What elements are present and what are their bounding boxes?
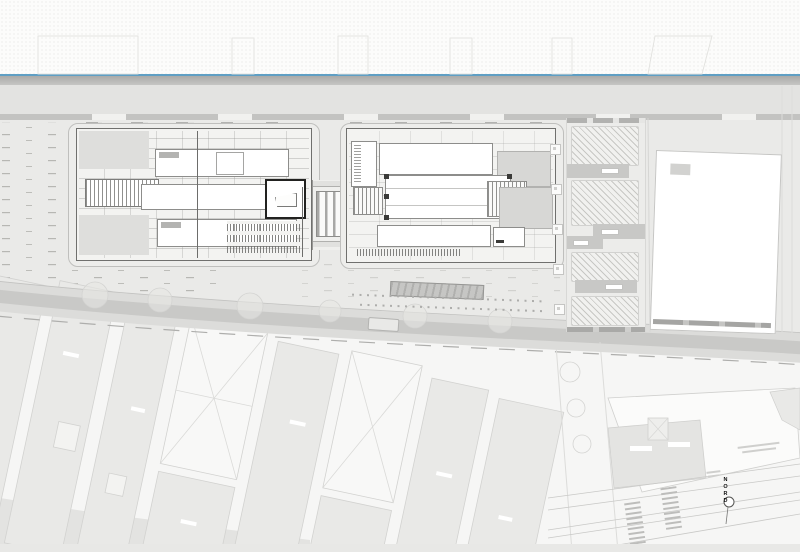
west-warehouse	[76, 128, 312, 261]
east-gray-suite-south	[499, 187, 553, 229]
lane-planter-2	[551, 184, 562, 195]
east-warehouse	[346, 128, 556, 263]
garden-bed-3	[571, 252, 639, 282]
east-col-chip-3	[507, 174, 512, 179]
west-hall-north-chip	[159, 152, 179, 158]
west-hall-south-chip	[161, 222, 181, 228]
east-plinth-grilles	[357, 248, 461, 256]
garden-path-1	[567, 164, 629, 178]
garden-path-3	[567, 236, 603, 249]
east-stair-nw-treads	[354, 144, 361, 182]
garden-south-wall	[567, 327, 645, 332]
parked-car	[368, 317, 400, 332]
east-col-chip-2	[384, 215, 389, 220]
pier-outlines	[38, 36, 712, 74]
west-axis-line-a	[197, 131, 198, 258]
garden-bed-1	[571, 126, 639, 166]
east-room-se	[493, 227, 525, 247]
event-hall-south-edge	[653, 319, 771, 328]
garden-bed-4	[571, 296, 639, 326]
garden-strip	[566, 118, 646, 332]
west-axis-line-b	[302, 187, 303, 257]
east-hall-south	[377, 225, 491, 247]
west-hall-north-cell	[216, 152, 244, 175]
east-se-equip	[496, 240, 504, 243]
west-gray-bay-bottom	[79, 215, 149, 255]
site-plan-canvas: NORD	[0, 0, 800, 552]
garden-north-wall	[567, 118, 645, 123]
garden-bed-2	[571, 180, 639, 226]
lane-planter-1	[550, 144, 561, 155]
garden-bench-2	[601, 229, 619, 235]
west-hall-north	[155, 149, 289, 177]
east-col-chip-1	[384, 174, 389, 179]
event-hall-site	[650, 150, 782, 334]
east-col-chip-5	[384, 194, 389, 199]
garden-bench-3	[573, 240, 589, 246]
lane-planter-5	[554, 304, 565, 315]
south-edge-street	[0, 544, 800, 552]
west-storage-racks	[227, 221, 305, 253]
west-gray-bay-top	[79, 131, 149, 169]
east-stair-core-nw	[351, 141, 377, 187]
west-dark-frame-object	[275, 193, 297, 207]
east-hall-north	[379, 143, 493, 175]
east-stair-west	[353, 187, 383, 215]
lane-planter-4	[553, 264, 564, 275]
garden-bench-1	[601, 168, 619, 174]
west-central-gallery	[141, 184, 279, 210]
west-dark-frame-room	[265, 179, 306, 219]
garden-path-4	[575, 280, 637, 293]
lane-planter-3	[552, 224, 563, 235]
north-label: NORD	[722, 477, 732, 505]
garden-bench-4	[605, 284, 623, 290]
event-hall-kiosk	[670, 164, 690, 176]
